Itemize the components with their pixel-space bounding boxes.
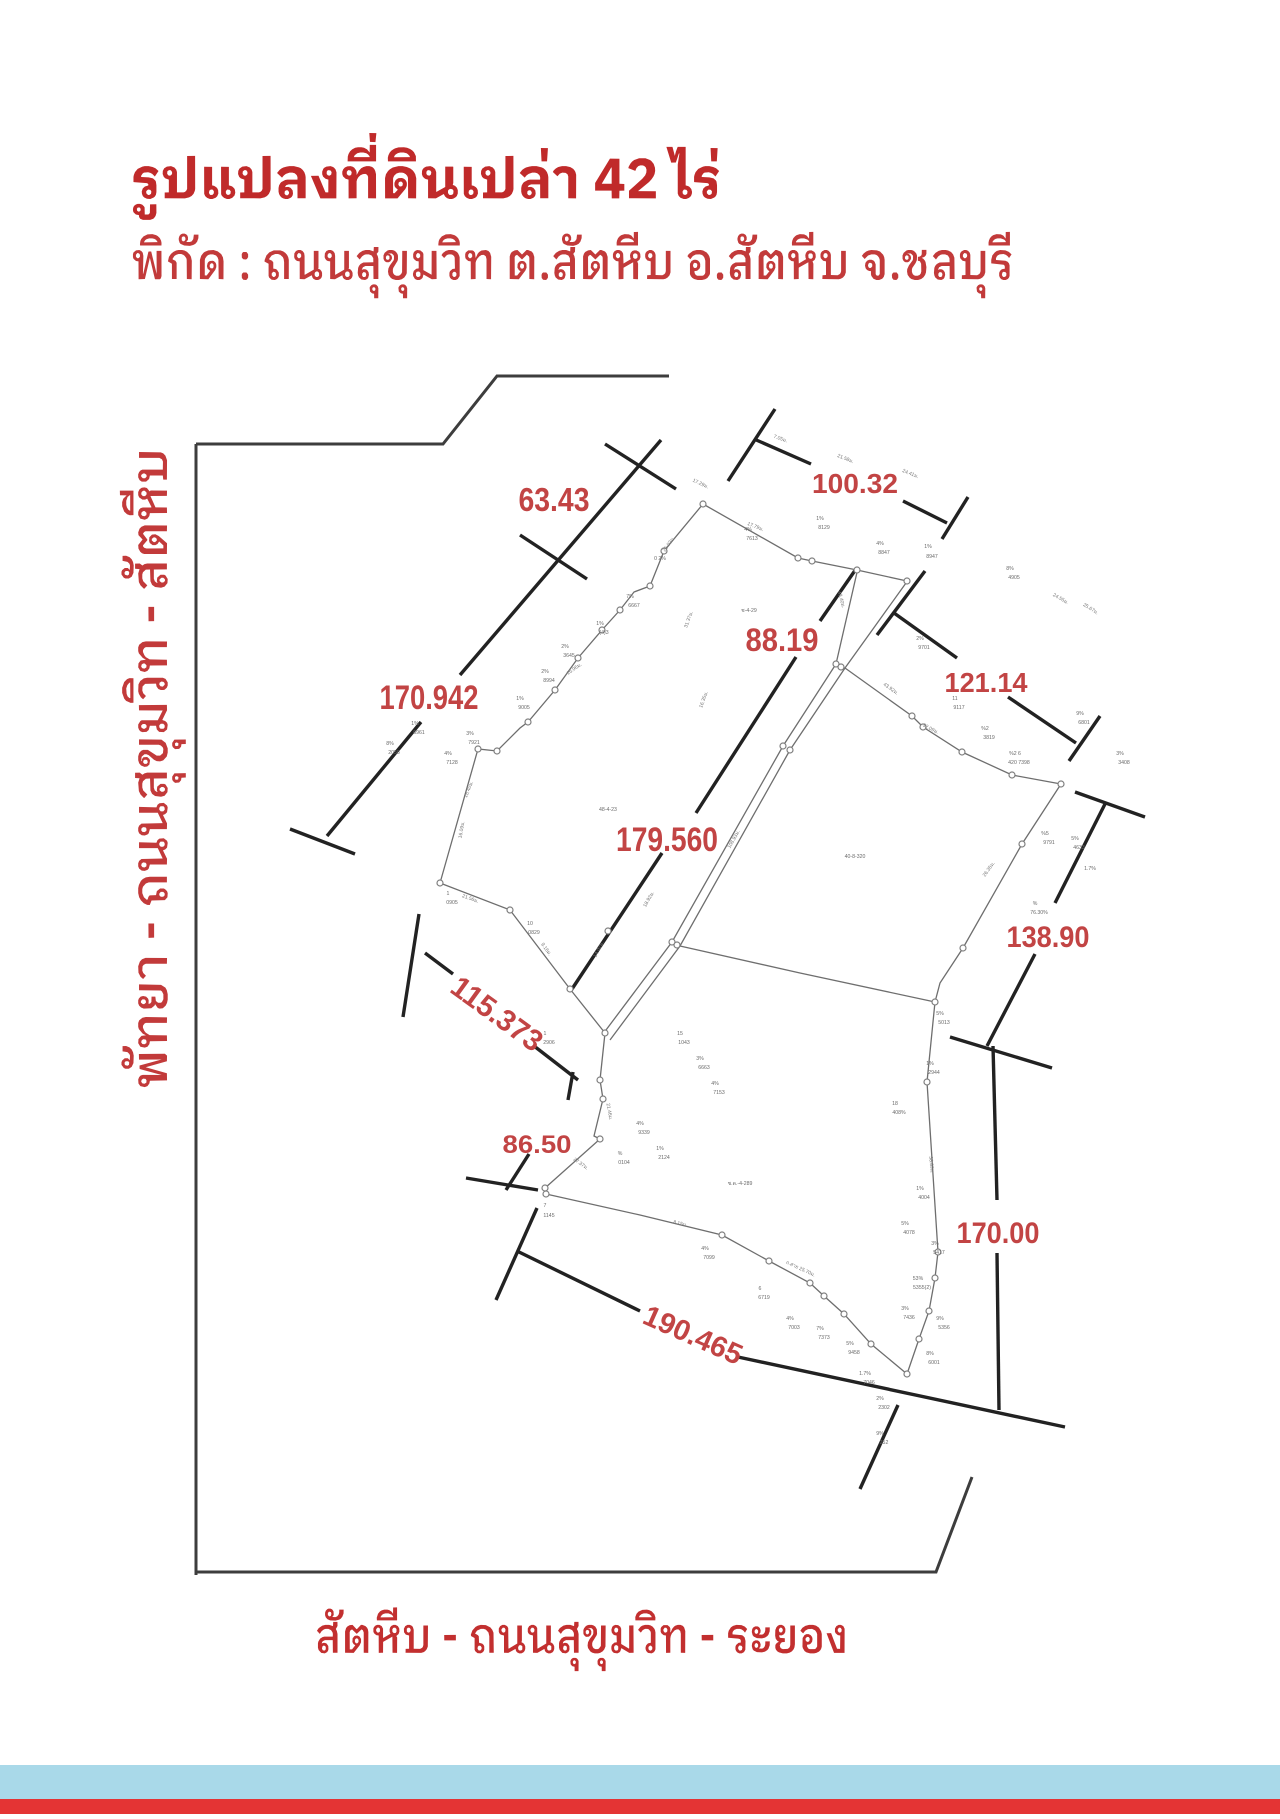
svg-text:6663: 6663 — [698, 1065, 710, 1071]
svg-text:3408: 3408 — [1118, 760, 1130, 766]
svg-text:8%: 8% — [386, 741, 394, 747]
svg-text:4905: 4905 — [1008, 575, 1020, 581]
svg-text:7046: 7046 — [863, 1380, 875, 1386]
svg-text:0905: 0905 — [446, 900, 458, 906]
svg-text:1%: 1% — [926, 1061, 934, 1067]
svg-text:1: 1 — [544, 1031, 547, 1037]
svg-text:11: 11 — [952, 696, 957, 702]
svg-text:88.19: 88.19 — [746, 622, 819, 658]
svg-text:2124: 2124 — [658, 1155, 670, 1161]
svg-text:8129: 8129 — [818, 525, 830, 531]
svg-text:3%: 3% — [901, 1306, 909, 1312]
svg-text:63.43: 63.43 — [519, 481, 590, 518]
svg-text:252: 252 — [880, 1440, 889, 1446]
svg-text:7921: 7921 — [468, 740, 480, 746]
svg-text:7436: 7436 — [903, 1315, 915, 1321]
svg-text:15: 15 — [677, 1031, 683, 1037]
svg-text:9791: 9791 — [1043, 840, 1055, 846]
svg-text:%: % — [618, 1151, 623, 1157]
svg-text:5356: 5356 — [938, 1325, 950, 1331]
svg-text:5%: 5% — [901, 1221, 909, 1227]
svg-text:3645: 3645 — [563, 653, 575, 659]
svg-text:6: 6 — [759, 1286, 762, 1292]
svg-text:408%: 408% — [892, 1110, 906, 1116]
svg-text:1%: 1% — [656, 1146, 664, 1152]
svg-text:0 2%: 0 2% — [654, 556, 666, 562]
svg-text:3%: 3% — [696, 1056, 704, 1062]
svg-text:2906: 2906 — [543, 1040, 555, 1046]
svg-text:40-8-320: 40-8-320 — [845, 854, 866, 860]
svg-text:7%: 7% — [816, 1326, 824, 1332]
svg-text:9%: 9% — [1076, 711, 1084, 717]
svg-text:8947: 8947 — [926, 554, 938, 560]
svg-text:7099: 7099 — [703, 1255, 715, 1261]
svg-text:10: 10 — [527, 921, 533, 927]
svg-text:170.942: 170.942 — [380, 679, 479, 717]
svg-text:ช.ด.-4-289: ช.ด.-4-289 — [728, 1181, 753, 1187]
svg-text:0104: 0104 — [618, 1160, 630, 1166]
svg-text:8847: 8847 — [878, 550, 890, 556]
svg-text:9005: 9005 — [518, 705, 530, 711]
svg-text:4%: 4% — [701, 1246, 709, 1252]
svg-text:9%: 9% — [876, 1431, 884, 1437]
svg-text:5%: 5% — [846, 1341, 854, 1347]
svg-text:179.560: 179.560 — [616, 821, 718, 859]
svg-text:2%: 2% — [876, 1396, 884, 1402]
svg-text:7%: 7% — [626, 594, 634, 600]
svg-text:5%: 5% — [936, 1011, 944, 1017]
svg-text:%: % — [1033, 901, 1038, 907]
svg-text:1: 1 — [447, 891, 450, 897]
svg-text:53%: 53% — [913, 1276, 924, 1282]
svg-text:4004: 4004 — [918, 1195, 930, 1201]
svg-text:9%: 9% — [936, 1316, 944, 1322]
svg-text:9117: 9117 — [953, 705, 964, 711]
svg-text:2944: 2944 — [928, 1070, 940, 1076]
svg-text:3%: 3% — [931, 1241, 939, 1247]
svg-text:2058: 2058 — [388, 750, 400, 756]
svg-text:4%: 4% — [444, 751, 452, 757]
svg-text:%5: %5 — [1041, 831, 1049, 837]
svg-text:1%: 1% — [816, 516, 824, 522]
svg-text:7373: 7373 — [818, 1335, 830, 1341]
svg-text:%2: %2 — [981, 726, 989, 732]
svg-text:9701: 9701 — [918, 645, 930, 651]
svg-text:4633: 4633 — [1073, 845, 1085, 851]
svg-text:2%: 2% — [541, 669, 549, 675]
svg-text:86.50: 86.50 — [503, 1131, 572, 1159]
svg-text:8%: 8% — [1006, 566, 1014, 572]
svg-text:4%: 4% — [876, 541, 884, 547]
svg-text:3819: 3819 — [983, 735, 995, 741]
svg-text:2302: 2302 — [878, 1405, 890, 1411]
svg-text:6719: 6719 — [758, 1295, 770, 1301]
svg-text:76.30%: 76.30% — [1030, 910, 1048, 916]
svg-text:1%: 1% — [411, 721, 419, 727]
svg-text:6961: 6961 — [413, 730, 425, 736]
svg-text:1%: 1% — [916, 1186, 924, 1192]
svg-text:7613: 7613 — [746, 536, 758, 542]
svg-text:4%: 4% — [786, 1316, 794, 1322]
svg-text:6001: 6001 — [928, 1360, 940, 1366]
svg-text:1145: 1145 — [543, 1213, 554, 1219]
svg-text:ช-4-29: ช-4-29 — [741, 608, 757, 614]
svg-text:4078: 4078 — [903, 1230, 915, 1236]
svg-text:420 7398: 420 7398 — [1008, 760, 1030, 766]
svg-text:9458: 9458 — [848, 1350, 860, 1356]
svg-text:7003: 7003 — [788, 1325, 800, 1331]
svg-text:1%: 1% — [596, 621, 604, 627]
svg-text:6801: 6801 — [1078, 720, 1090, 726]
svg-text:1.7%: 1.7% — [859, 1371, 871, 1377]
svg-text:9339: 9339 — [638, 1130, 650, 1136]
svg-text:(4)3: (4)3 — [599, 630, 608, 636]
svg-text:%2 6: %2 6 — [1009, 751, 1021, 757]
svg-text:5013: 5013 — [938, 1020, 950, 1026]
svg-text:100.32: 100.32 — [812, 468, 898, 499]
svg-text:2%: 2% — [561, 644, 569, 650]
svg-text:1%: 1% — [516, 696, 524, 702]
svg-text:170.00: 170.00 — [957, 1217, 1040, 1250]
svg-text:18: 18 — [892, 1101, 898, 1107]
svg-text:1043: 1043 — [678, 1040, 690, 1046]
svg-text:8%: 8% — [926, 1351, 934, 1357]
svg-text:0829: 0829 — [528, 930, 540, 936]
svg-text:7: 7 — [544, 1203, 547, 1209]
svg-text:7128: 7128 — [446, 760, 458, 766]
svg-text:121.14: 121.14 — [945, 667, 1028, 698]
svg-text:5417: 5417 — [933, 1250, 945, 1256]
svg-text:48-4-23: 48-4-23 — [599, 807, 617, 813]
svg-text:7153: 7153 — [713, 1090, 725, 1096]
svg-text:5355(2): 5355(2) — [913, 1285, 931, 1291]
svg-text:6667: 6667 — [628, 603, 640, 609]
svg-text:4%: 4% — [636, 1121, 644, 1127]
svg-text:2%: 2% — [916, 636, 924, 642]
svg-text:3%: 3% — [466, 731, 474, 737]
svg-text:5%: 5% — [1071, 836, 1079, 842]
svg-text:4%: 4% — [711, 1081, 719, 1087]
svg-text:3%: 3% — [1116, 751, 1124, 757]
svg-text:8994: 8994 — [543, 678, 555, 684]
svg-text:1%: 1% — [924, 544, 932, 550]
svg-text:1.7%: 1.7% — [1084, 866, 1096, 872]
svg-text:138.90: 138.90 — [1007, 921, 1090, 954]
